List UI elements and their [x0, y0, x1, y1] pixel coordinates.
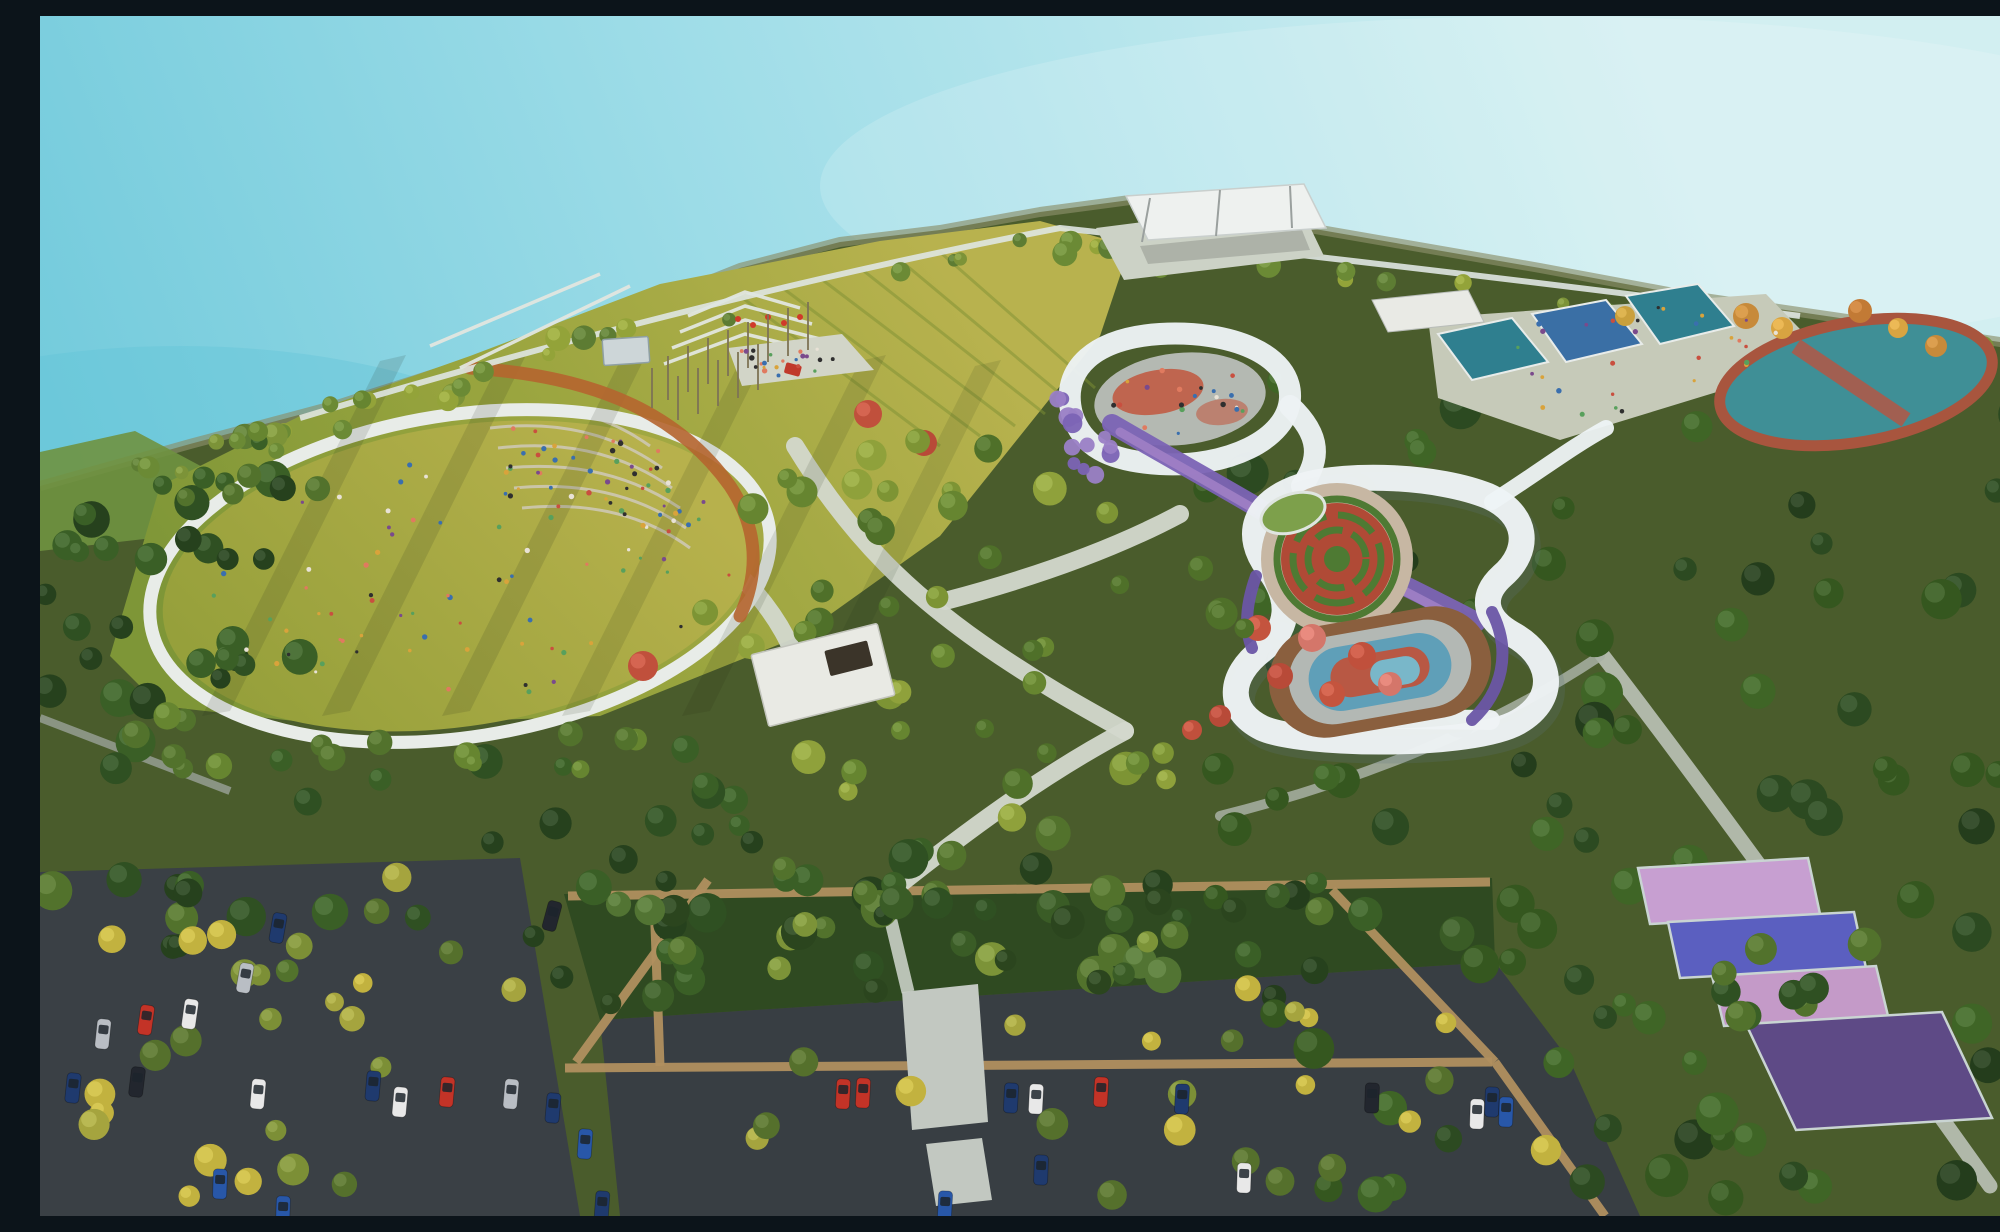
parked-car [1484, 1087, 1499, 1117]
parked-car [94, 1018, 111, 1049]
parked-car [1498, 1097, 1513, 1127]
parked-car [275, 1196, 290, 1216]
parked-car [439, 1076, 456, 1107]
parking-lot-left [40, 858, 580, 1216]
parked-car [855, 1078, 871, 1109]
parked-car [1364, 1083, 1379, 1113]
parked-car [545, 1092, 562, 1123]
bottom-road-segment [926, 1138, 992, 1206]
parked-car [392, 1086, 409, 1117]
maze-hedge-center [1324, 546, 1350, 572]
parked-car [365, 1070, 382, 1101]
parked-car [577, 1129, 593, 1160]
parked-car [835, 1079, 851, 1110]
parked-car [1028, 1084, 1044, 1115]
parked-car [594, 1191, 610, 1216]
parked-car [1469, 1099, 1484, 1129]
parked-car [937, 1191, 953, 1216]
bottom-road-segment [902, 984, 988, 1130]
parked-car [1003, 1083, 1019, 1114]
parked-car [1093, 1077, 1109, 1108]
parked-car [64, 1072, 81, 1103]
parked-car [1236, 1163, 1251, 1193]
screenshot [40, 16, 2000, 1216]
parked-car [212, 1169, 227, 1199]
aerial-park-render [40, 16, 2000, 1216]
parked-car [250, 1078, 267, 1109]
glass-pavilion [602, 336, 650, 365]
parked-car [503, 1078, 520, 1109]
parked-car [1174, 1084, 1190, 1115]
parked-car [1033, 1155, 1048, 1185]
